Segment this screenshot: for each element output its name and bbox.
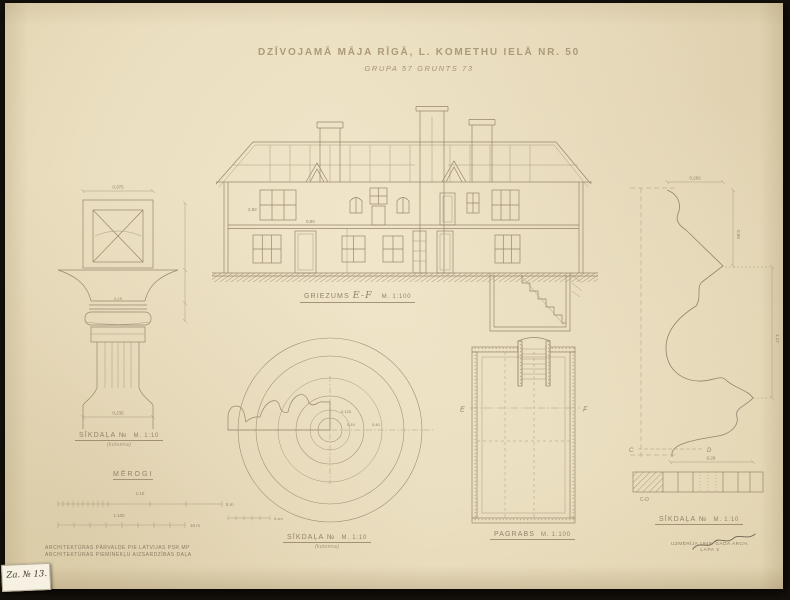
column-caption-sub: (kolonna) [75, 442, 163, 448]
round-detail-dimensions: 0,125 0,19 0,40 [341, 409, 381, 427]
round-caption-sub: (kolonna) [283, 544, 371, 550]
mini-scale-bar: 5 cm [228, 516, 283, 522]
svg-text:0,90: 0,90 [306, 219, 315, 224]
round-caption-scale: M. 1:10 [342, 535, 368, 541]
svg-text:0,19: 0,19 [114, 296, 123, 301]
basement-walls [472, 347, 575, 523]
svg-text:0,375: 0,375 [112, 185, 124, 190]
round-detail-drawing: 0,125 0,19 0,40 5 cm [220, 332, 445, 537]
section-attic-framing [232, 145, 578, 182]
section-chimneys [317, 107, 495, 274]
organization-line-2: ARCHITEKTŪRAS PIEMINEKĻU AIZSARDZĪBAS DA… [45, 552, 192, 559]
scanned-drawing-sheet: DZĪVOJAMĀ MĀJA RĪGĀ, L. KOMETHU IELĀ NR.… [0, 0, 790, 600]
column-shaft [83, 342, 153, 429]
svg-text:1:10: 1:10 [136, 491, 145, 496]
credit-block: UZMĒRĪJA 1949. GADĀ ARCH. LAPA 2 [645, 542, 775, 553]
svg-text:0,125: 0,125 [341, 409, 352, 414]
organization-line-1: ARCHITEKTŪRAS PĀRVALDE PIE LATVIJAS PSR … [45, 545, 192, 552]
profile-dimensions: 0,282 0,58 1,17 0,28 [665, 176, 780, 465]
organization-block: ARCHITEKTŪRAS PĀRVALDE PIE LATVIJAS PSR … [45, 545, 192, 559]
sheet-subtitle: GRUPA 57 GRUNTS 73 [55, 64, 783, 73]
profile-caption-scale: M. 1:10 [714, 517, 740, 523]
svg-text:C: C [629, 448, 634, 454]
svg-text:5 cm: 5 cm [274, 516, 283, 521]
profile-caption-label: SĪKDAĻA № [659, 516, 708, 523]
drawing-paper: DZĪVOJAMĀ MĀJA RĪGĀ, L. KOMETHU IELĀ NR.… [5, 3, 783, 589]
round-detail-caption: SĪKDAĻA №M. 1:10 (kolonna) [283, 534, 371, 550]
lower-floor-openings [253, 231, 520, 273]
section-caption: GRIEZUMSE-FM. 1:100 [300, 290, 415, 303]
column-detail-drawing: 0,375 0,19 0,235 [53, 181, 203, 446]
section-caption-id: E-F [353, 290, 373, 301]
basement-plan-drawing: E F [460, 333, 610, 533]
column-abacus [83, 200, 153, 268]
svg-text:10 m: 10 m [190, 523, 200, 528]
svg-text:0,58: 0,58 [736, 230, 741, 239]
section-caption-scale: M. 1:100 [382, 294, 412, 300]
svg-text:1:100: 1:100 [113, 513, 125, 518]
building-section-drawing: 2,92 0,90 [210, 105, 600, 345]
column-caption-scale: M. 1:10 [134, 433, 160, 439]
svg-text:0,19: 0,19 [347, 422, 356, 427]
profile-detail-drawing: 0,282 0,58 1,17 0,28 C D C-D [620, 158, 790, 518]
section-cut-line-cd: C D [629, 448, 712, 454]
section-dimensions: 2,92 0,90 [248, 207, 315, 224]
svg-text:0,282: 0,282 [689, 176, 701, 181]
svg-text:F: F [583, 407, 588, 414]
section-caption-label: GRIEZUMS [304, 293, 350, 300]
column-capital [58, 270, 178, 342]
basement-caption-scale: M. 1:100 [541, 532, 571, 538]
scales-heading: MĒROGI [113, 471, 153, 480]
section-walls-roof [216, 142, 592, 273]
archive-number-text: Za. № 13. [2, 564, 50, 581]
sheet-title: DZĪVOJAMĀ MĀJA RĪGĀ, L. KOMETHU IELĀ NR.… [55, 47, 783, 58]
svg-text:1,17: 1,17 [775, 334, 780, 343]
scale-bar-1: 1:10 5 m [58, 491, 234, 507]
profile-reference-lines [630, 188, 678, 460]
svg-text:C-D: C-D [640, 497, 649, 503]
section-ground [212, 273, 598, 282]
svg-text:0,40: 0,40 [372, 422, 381, 427]
section-cut-line-ef: E F [460, 407, 588, 414]
scale-bar-2: 1:100 10 m [58, 513, 200, 528]
svg-text:D: D [707, 448, 712, 454]
svg-text:0,235: 0,235 [112, 411, 124, 416]
upper-floor-openings [260, 188, 519, 225]
column-detail-caption: SĪKDAĻA №M. 1:10 (kolonna) [75, 432, 163, 448]
round-caption-label: SĪKDAĻA № [287, 534, 336, 541]
profile-detail-caption: SĪKDAĻA №M. 1:10 [655, 516, 743, 525]
archive-number-scrap: Za. № 13. [1, 563, 51, 592]
column-caption-label: SĪKDAĻA № [79, 432, 128, 439]
basement-caption: PAGRABSM. 1:100 [490, 531, 575, 540]
cd-section-bar: C-D [633, 472, 763, 503]
svg-text:E: E [460, 407, 465, 414]
svg-text:0,28: 0,28 [707, 456, 716, 461]
basement-caption-label: PAGRABS [494, 531, 535, 538]
basement-dashed-lines [477, 352, 570, 518]
svg-text:2,92: 2,92 [248, 207, 257, 212]
